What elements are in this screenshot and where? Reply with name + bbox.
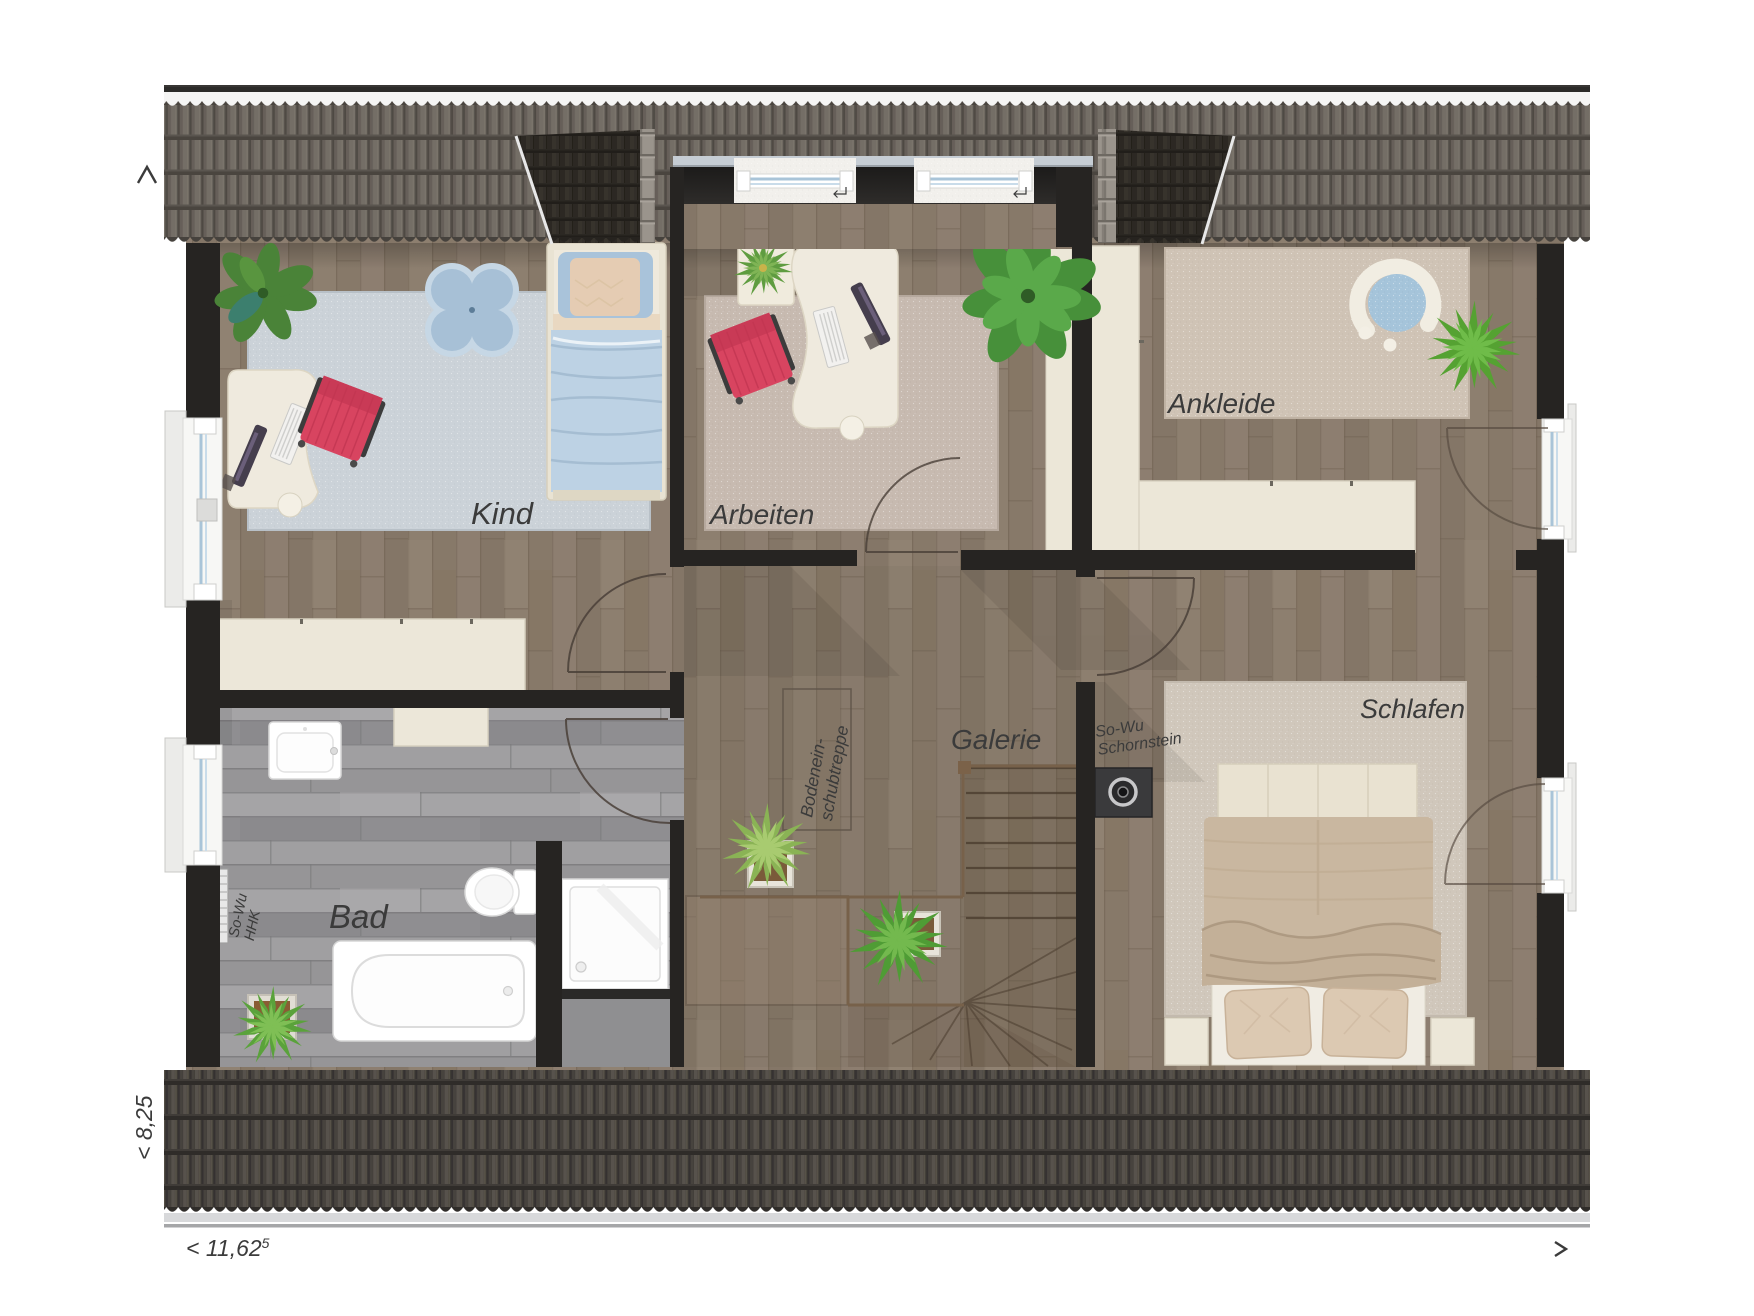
svg-text:Ankleide: Ankleide [1166, 388, 1275, 419]
svg-text:Arbeiten: Arbeiten [708, 499, 814, 530]
svg-text:Schlafen: Schlafen [1360, 694, 1465, 724]
svg-text:Bad: Bad [329, 898, 389, 935]
svg-text:Galerie: Galerie [951, 724, 1041, 755]
svg-text:Kind: Kind [471, 496, 535, 531]
svg-text:< 11,625: < 11,625 [186, 1235, 270, 1261]
svg-text:< 8,25: < 8,25 [131, 1095, 157, 1160]
